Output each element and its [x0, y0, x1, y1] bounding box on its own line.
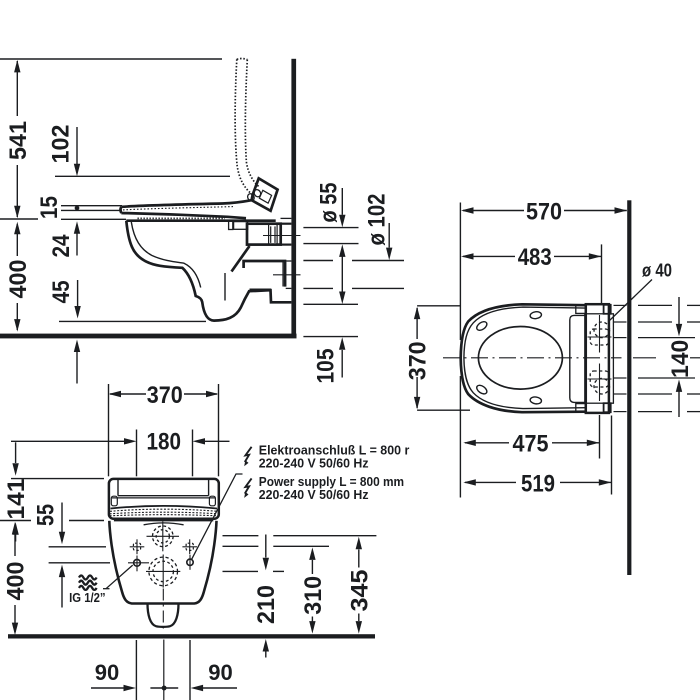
svg-text:541: 541 [5, 121, 32, 160]
svg-text:15: 15 [36, 196, 63, 219]
svg-text:345: 345 [346, 570, 373, 612]
svg-text:Power supply L = 800 mm: Power supply L = 800 mm [259, 475, 404, 489]
svg-text:ø 55: ø 55 [315, 183, 342, 223]
svg-text:102: 102 [47, 125, 74, 164]
svg-text:370: 370 [405, 341, 432, 380]
svg-text:141: 141 [3, 479, 30, 520]
svg-text:180: 180 [147, 428, 182, 455]
svg-text:45: 45 [48, 280, 75, 303]
svg-text:140: 140 [667, 340, 694, 378]
svg-text:90: 90 [95, 660, 120, 685]
svg-text:310: 310 [300, 576, 327, 615]
svg-text:ø 102: ø 102 [363, 194, 390, 246]
svg-text:IG 1/2”: IG 1/2” [69, 591, 106, 605]
svg-text:55: 55 [32, 504, 59, 526]
svg-text:24: 24 [48, 234, 75, 257]
svg-text:220-240 V 50/60 Hz: 220-240 V 50/60 Hz [259, 456, 369, 470]
svg-text:Elektroanschluß L = 800 r: Elektroanschluß L = 800 r [259, 444, 410, 458]
svg-text:220-240 V 50/60 Hz: 220-240 V 50/60 Hz [259, 488, 369, 502]
svg-text:475: 475 [513, 430, 549, 457]
svg-text:483: 483 [518, 244, 552, 271]
svg-text:90: 90 [208, 660, 233, 685]
svg-text:400: 400 [5, 260, 32, 299]
svg-text:519: 519 [521, 471, 555, 498]
svg-text:400: 400 [2, 562, 29, 601]
svg-text:105: 105 [312, 349, 339, 384]
svg-text:210: 210 [253, 585, 280, 624]
svg-text:ø 40: ø 40 [642, 259, 672, 280]
svg-text:570: 570 [526, 198, 562, 225]
svg-text:370: 370 [147, 382, 183, 409]
